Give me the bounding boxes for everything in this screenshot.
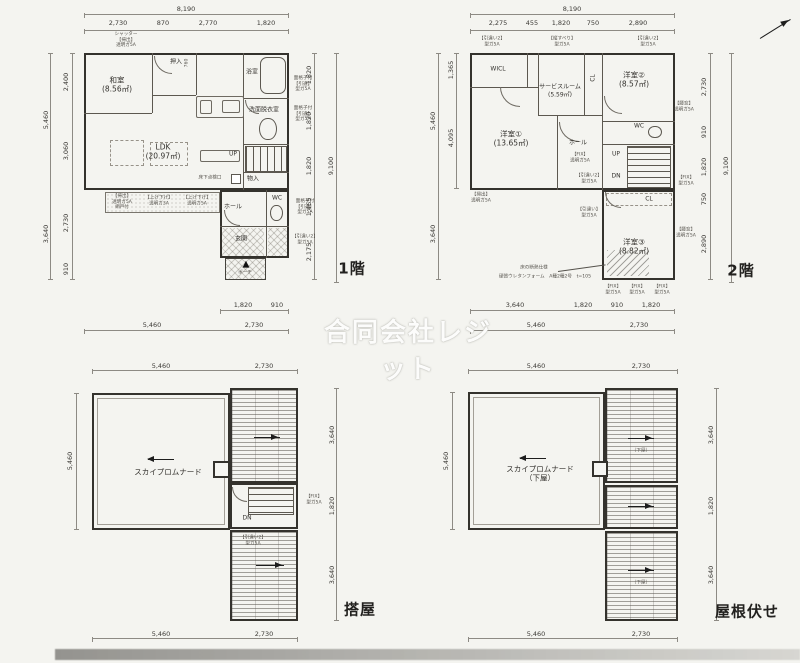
dimension-line [716, 388, 717, 621]
dim: 2,730 [632, 630, 651, 638]
roof-note: （下屋） [632, 580, 650, 586]
roof-deck-middle [605, 485, 678, 529]
dim: 3,640 [707, 566, 715, 585]
roof-deck-upper [605, 388, 678, 483]
roof-note: （下屋） [632, 448, 650, 454]
roof-deck-lower [605, 531, 678, 621]
room-sky-promenade: スカイプロムナード （下屋） [506, 465, 574, 484]
slope-arrow [520, 458, 546, 459]
slope-arrow [628, 506, 654, 507]
dim: 1,820 [707, 497, 715, 516]
watermark: 合同会社レジット [318, 312, 498, 386]
door-housing [592, 461, 608, 477]
slope-arrow [628, 570, 654, 571]
slope-arrow [628, 438, 654, 439]
dim: 5,460 [442, 452, 450, 471]
dimension-line [468, 638, 678, 639]
dim: 3,640 [707, 426, 715, 445]
dim: 2,730 [632, 362, 651, 370]
dim: 5,460 [527, 362, 546, 370]
dimension-line [452, 392, 453, 530]
floor-title: 屋根伏せ [715, 603, 779, 622]
dim: 5,460 [527, 630, 546, 638]
promenade-inner-line [473, 397, 600, 525]
blueprint-page: 8,1902,7308702,7701,820シャッター 【掃出】 透明ガ5A7… [0, 0, 800, 663]
scan-artifact-band [55, 649, 800, 660]
dimension-line [468, 370, 678, 371]
